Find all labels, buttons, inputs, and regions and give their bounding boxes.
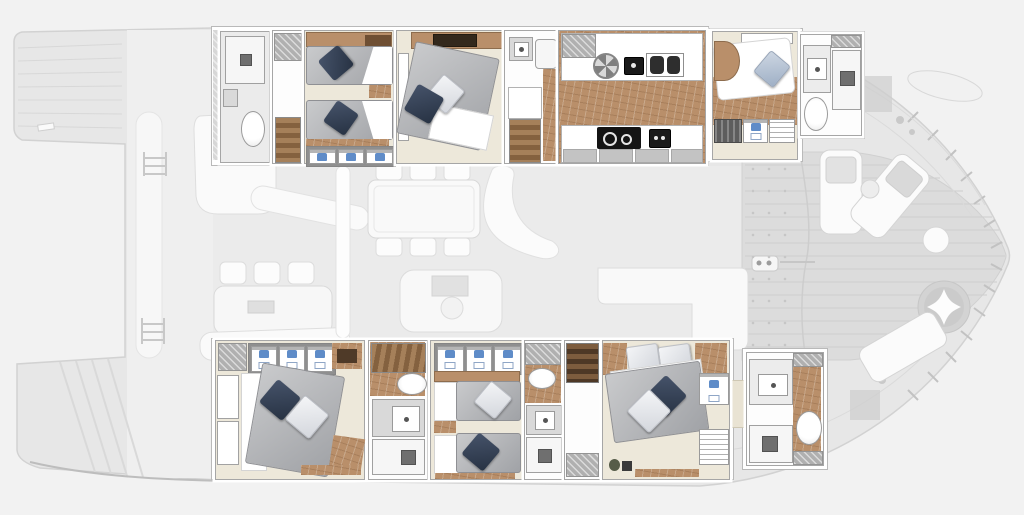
shower-tray [535,39,557,69]
lower-aft-bathroom [746,352,824,466]
lower-aft-cabin [602,340,730,480]
shelf-locker [699,429,729,465]
wood-floor [543,69,557,161]
toilet-icon [241,111,265,147]
helm-console [400,270,502,332]
locker-shirt-icon [338,149,365,164]
coachroof-band [136,112,162,358]
lower-twin-cabin [430,340,524,480]
toilet-icon [796,411,822,445]
locker-shirt-icon [699,373,729,405]
anchor-dots-field [745,158,797,356]
washbasin-icon [372,399,425,437]
vent-locker [562,34,596,58]
winch-icon [909,129,915,135]
dark-locker [714,119,742,143]
shower [832,50,861,110]
windshield-band [336,166,350,338]
winch-icon [896,116,904,124]
washbasin-icon [223,89,238,107]
deco-item [622,461,632,471]
vent-locker [566,453,599,477]
locker-shirt-icon [437,346,464,372]
upper-twin-cabin [304,30,394,164]
tv-unit [433,34,477,47]
nightstand [434,421,456,433]
cooktop-icon [597,127,641,149]
tablet-device [248,301,274,313]
vent-locker [831,35,861,48]
nightstand [369,85,391,98]
side-table [861,180,879,198]
stair-landing [508,87,542,119]
upper-locker-stairs [272,30,304,164]
shelf-locker [769,119,795,143]
hull-window [217,421,239,465]
oven-icon [649,129,671,148]
upper-side-deck-sliver [213,30,220,160]
staircase-icon [509,119,541,163]
bed-foot-trim [306,139,389,146]
yacht-floorplan-canvas [0,0,1024,515]
vent-locker [274,33,302,61]
locker-shirt-icon [466,346,493,372]
wood-trim [301,465,361,475]
wood-cabinet [332,343,362,369]
cabinet-front [599,149,633,163]
upper-bathroom-fwd [220,31,270,163]
shower [372,439,425,475]
washbasin-icon [526,405,562,435]
wood-trim [635,469,699,477]
shower [749,425,793,463]
upper-shower-stairs [504,30,560,164]
galley [558,30,706,164]
toilet-icon [528,368,556,389]
staircase-icon [371,343,426,373]
cabinet-front [563,149,597,163]
owner-cabin [215,340,365,480]
locker-shirt-icon [366,149,393,164]
locker-shirt-icon [743,119,768,143]
small-appliance-icon [624,57,644,75]
lower-mid-bathroom [368,340,428,480]
toilet-icon [804,97,828,131]
locker-shirt-icon [309,149,336,164]
vent-locker [218,343,247,371]
vent-locker [793,353,823,367]
dining-table [368,180,480,238]
washbasin-icon [509,37,533,61]
hull-window [217,375,239,419]
pouf [923,227,949,253]
upper-aft-cabin [712,31,798,160]
staircase-icon [275,117,301,163]
helm-screen [432,276,468,296]
wardrobe-3-shirts [306,146,396,167]
tender-dinghy [905,65,985,107]
cabinet-front [635,149,669,163]
toilet-icon [397,373,427,395]
lower-ensuite-wc [524,340,564,480]
vent-locker [793,451,823,465]
double-sink-icon [646,53,684,77]
upper-double-cabin [396,30,504,164]
dinette-chairs [220,262,314,284]
staircase-icon [566,343,599,383]
vent-locker [525,343,561,365]
shower [526,437,562,473]
cabinet-front [671,149,703,163]
aft-wall-sliver [730,380,746,428]
plant-icon [609,459,620,471]
locker-shirt-icon [307,346,333,372]
bed-foot-trim [435,473,515,479]
washbasin-icon [803,45,831,93]
deck-hatch-square-bottom [850,390,880,420]
shower [225,36,265,84]
lower-stair-lobby [564,340,602,480]
upper-aft-bathroom [800,34,862,136]
extractor-fan-icon [593,53,619,79]
locker-shirt-icon [494,346,521,372]
washbasin-icon [749,359,793,405]
helm-wheel [441,297,463,319]
